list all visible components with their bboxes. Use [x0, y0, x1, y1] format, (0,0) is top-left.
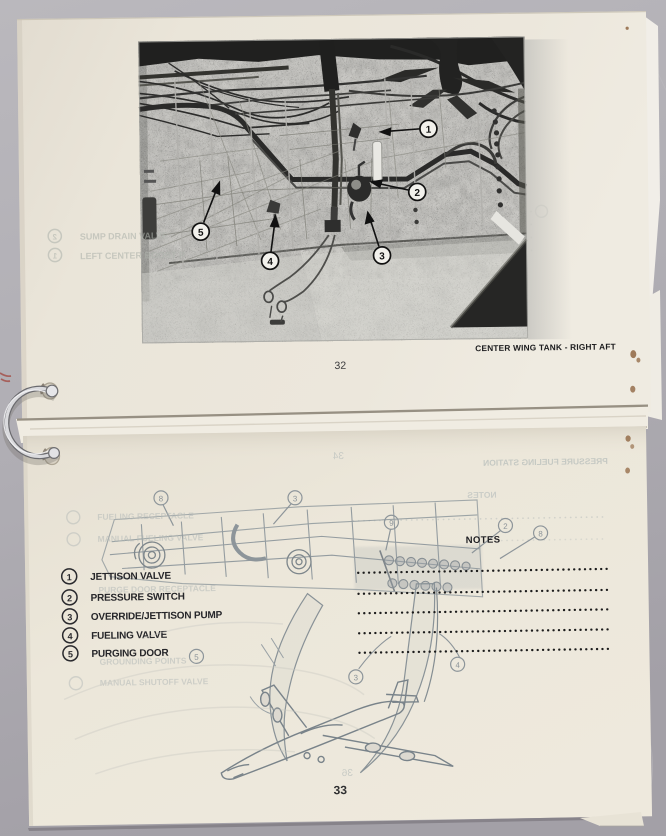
svg-text:9: 9 — [389, 519, 394, 528]
svg-text:36: 36 — [341, 768, 353, 779]
svg-text:8: 8 — [538, 529, 543, 538]
svg-text:32: 32 — [334, 360, 346, 372]
svg-text:1: 1 — [52, 252, 57, 261]
svg-text:3: 3 — [67, 612, 72, 622]
svg-text:34: 34 — [332, 451, 344, 462]
svg-text:2: 2 — [414, 188, 420, 199]
svg-text:4: 4 — [68, 631, 73, 641]
svg-text:2: 2 — [503, 522, 508, 531]
svg-text:PURGE DOOR RECEPTACLE: PURGE DOOR RECEPTACLE — [98, 583, 216, 595]
svg-text:CENTER WING TANK - RIGHT AFT: CENTER WING TANK - RIGHT AFT — [475, 341, 616, 353]
svg-text:NOTES: NOTES — [466, 535, 501, 547]
svg-text:4: 4 — [455, 661, 460, 670]
svg-text:GROUNDING POINTS: GROUNDING POINTS — [99, 656, 186, 667]
svg-text:1: 1 — [67, 572, 72, 582]
svg-text:3: 3 — [293, 494, 298, 503]
svg-text:5: 5 — [198, 228, 204, 239]
svg-text:SUMP DRAIN VALVE: SUMP DRAIN VALVE — [80, 231, 168, 242]
svg-text:2: 2 — [52, 233, 57, 242]
svg-text:NOTES: NOTES — [467, 490, 497, 500]
svg-text:1: 1 — [426, 125, 432, 136]
svg-text:33: 33 — [333, 783, 347, 797]
svg-text:MANUAL FUELING VALVE: MANUAL FUELING VALVE — [98, 532, 204, 544]
svg-text:MANUAL SHUTOFF VALVE: MANUAL SHUTOFF VALVE — [100, 676, 209, 688]
svg-text:3: 3 — [379, 251, 385, 262]
svg-text:LEFT CENTER BOOST P: LEFT CENTER BOOST P — [80, 250, 185, 261]
svg-text:PRESSURE FUELING STATION: PRESSURE FUELING STATION — [483, 456, 608, 468]
svg-text:5: 5 — [194, 653, 199, 662]
svg-text:FUELING VALVE: FUELING VALVE — [91, 630, 168, 642]
svg-text:5: 5 — [68, 649, 73, 659]
svg-text:8: 8 — [159, 494, 164, 503]
svg-text:3: 3 — [354, 673, 359, 682]
svg-text:2: 2 — [67, 593, 72, 603]
svg-text:FUELING RECEPTACLE: FUELING RECEPTACLE — [97, 510, 194, 522]
svg-text:4: 4 — [267, 257, 273, 268]
svg-text:JETTISON VALVE: JETTISON VALVE — [90, 571, 171, 583]
svg-text:OVERRIDE/JETTISON PUMP: OVERRIDE/JETTISON PUMP — [91, 610, 223, 623]
